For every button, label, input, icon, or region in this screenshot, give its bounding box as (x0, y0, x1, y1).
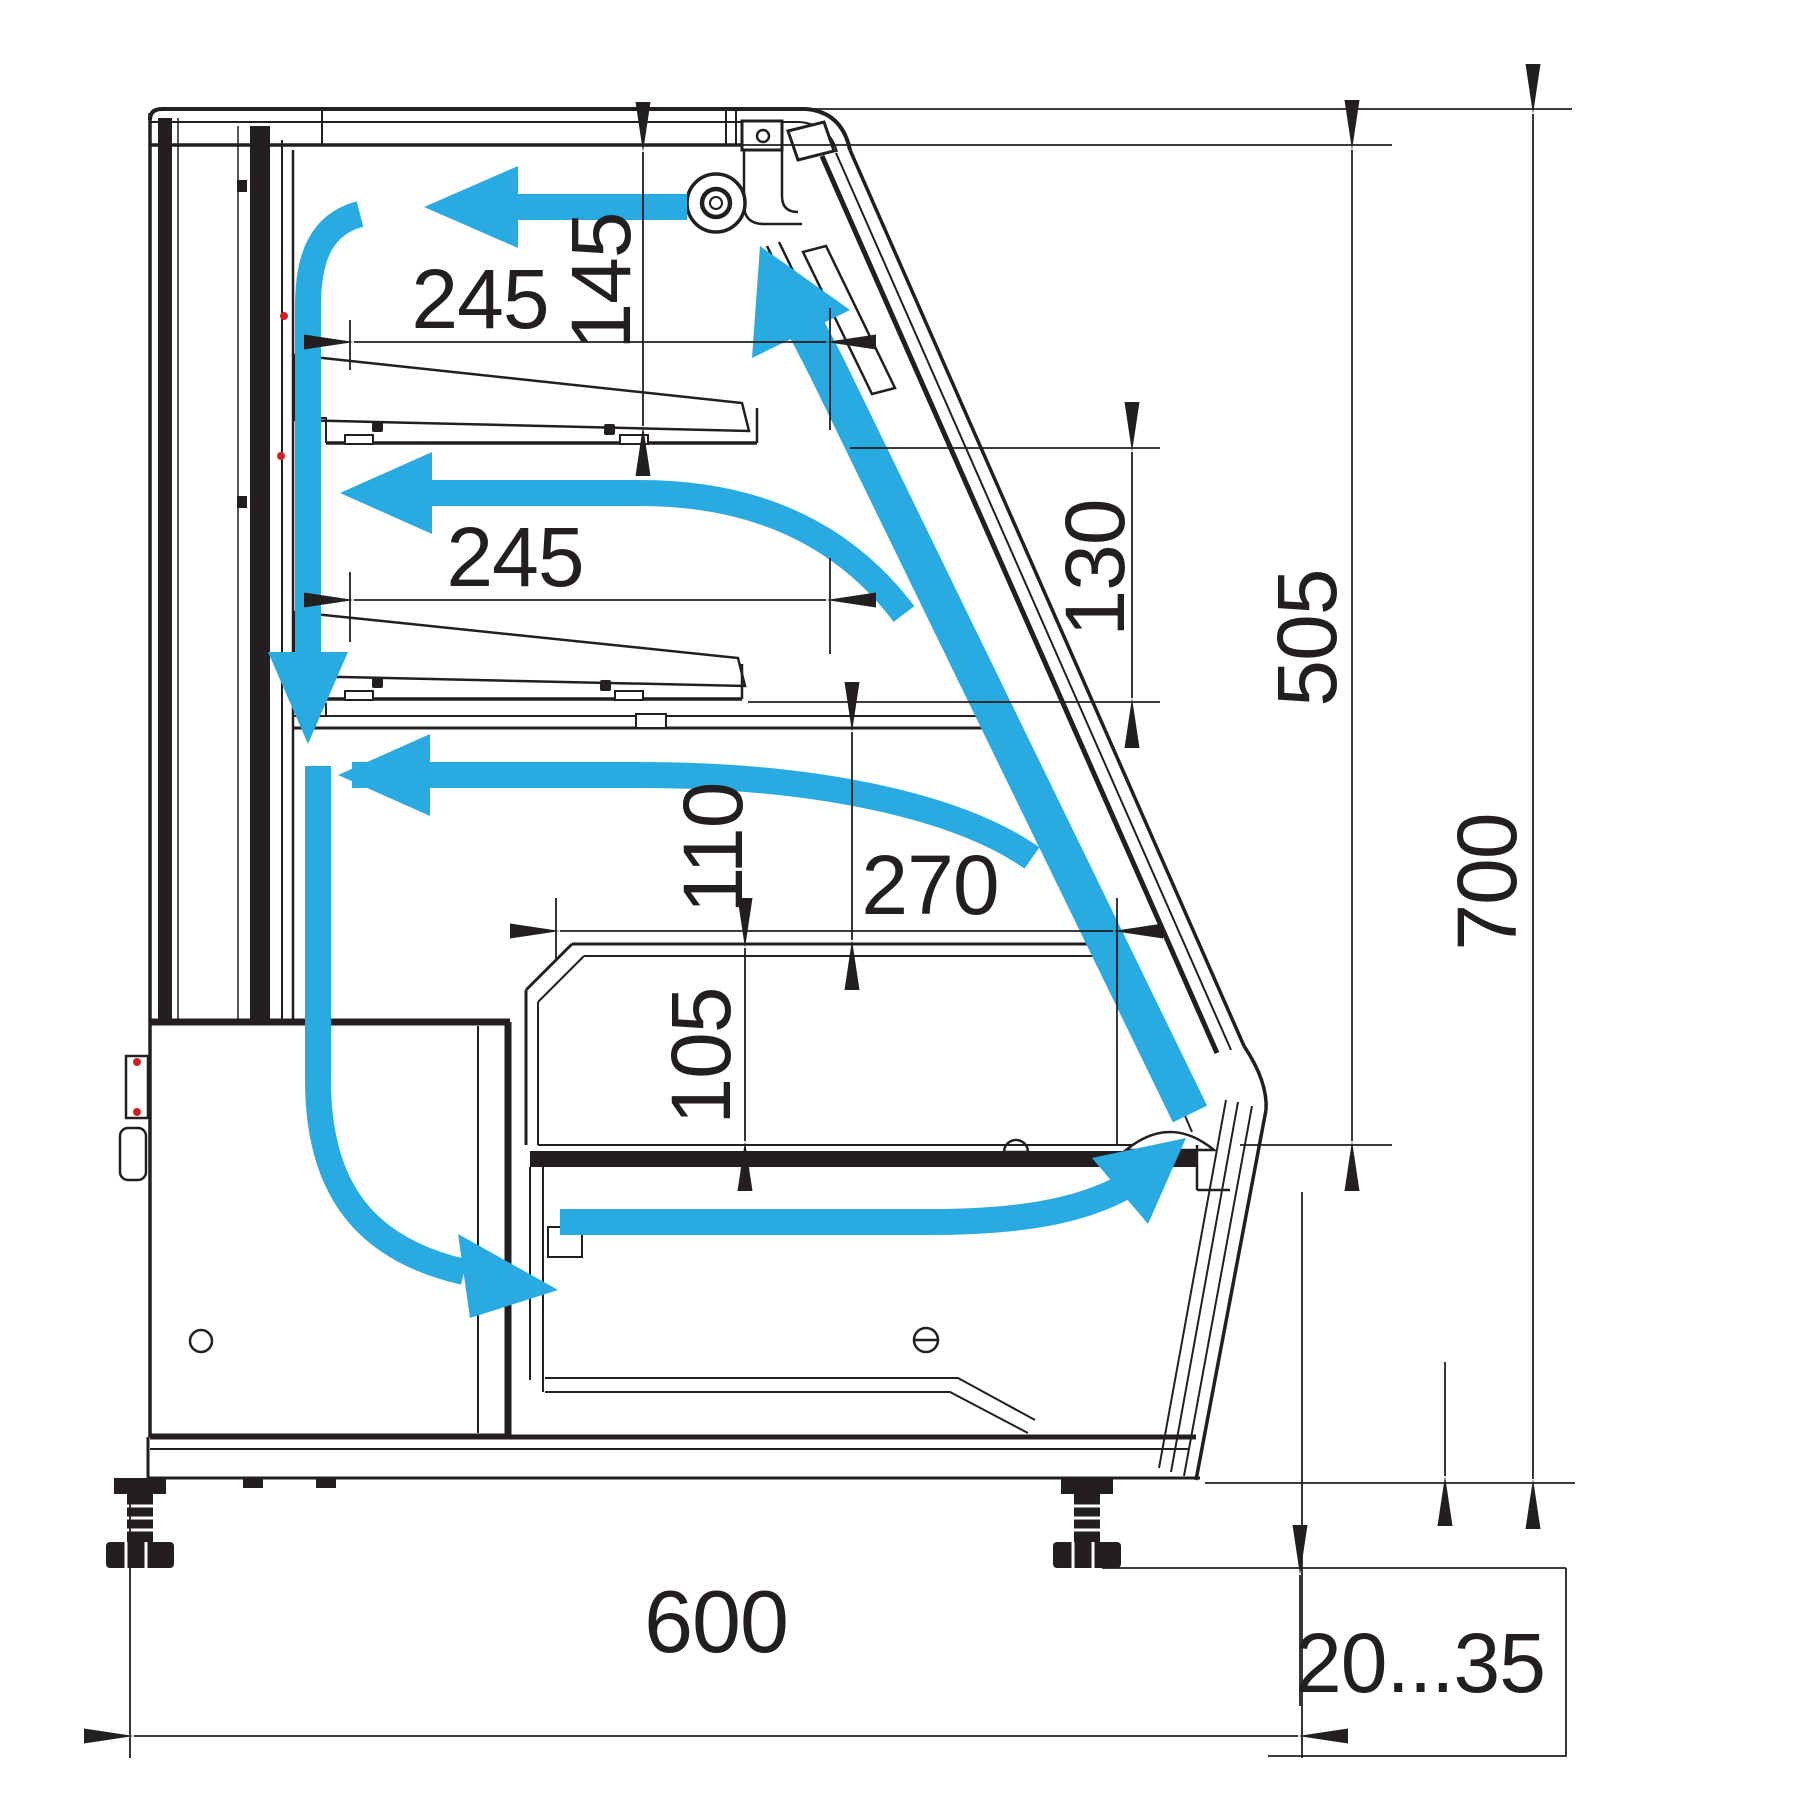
back-wall-extrusion-bar (250, 126, 270, 1022)
red-marker-dot (280, 312, 288, 320)
well-chamfer (526, 944, 572, 990)
airflow-bar (560, 1180, 1136, 1222)
fan-icon (687, 174, 745, 232)
back-wall (150, 113, 293, 1437)
dim-270-label: 270 (861, 838, 998, 932)
foot-base-nut (106, 1542, 174, 1568)
airflow-glass-upflow (752, 246, 1190, 1114)
cord-latch (120, 1128, 146, 1180)
duct-liner (293, 704, 1015, 728)
shelf-middle (293, 612, 745, 700)
dim-700-label: 700 (1440, 813, 1534, 950)
airflow-bottom-duct (560, 1138, 1186, 1224)
plinth-tab (243, 1478, 263, 1488)
shelf-plate (295, 612, 745, 686)
foot-base-nut (1053, 1542, 1121, 1568)
fan (687, 150, 802, 232)
bumper-line-outer (1196, 1110, 1266, 1480)
dim-505: 505 (1260, 150, 1354, 1141)
dim-600: 600 (134, 1572, 1298, 1736)
dim-130-label: 130 (1048, 499, 1142, 636)
dim-245-middle-label: 245 (446, 510, 583, 604)
shelf-screw-icon (372, 421, 383, 432)
shelf-clip (620, 435, 648, 444)
dim-600-label: 600 (644, 1572, 788, 1671)
red-marker-dot (133, 1108, 141, 1116)
shelf-clip (345, 691, 373, 700)
fan-bracket (744, 150, 802, 224)
front-bumper (914, 1046, 1266, 1480)
back-wall-extrusion-bar (158, 118, 172, 1022)
liner-clip (636, 714, 666, 728)
dim-145-label: 145 (554, 212, 648, 349)
shelf-screw-icon (604, 424, 615, 435)
dim-105-label: 105 (654, 987, 748, 1124)
dim-505-label: 505 (1260, 569, 1354, 706)
airflow-arrowhead-left (424, 166, 518, 248)
airflow-arrowhead-left (340, 452, 432, 534)
red-marker-dot (277, 452, 285, 460)
well-chamfer-inner (538, 956, 584, 1002)
leveling-foot-left (106, 1478, 174, 1568)
shelf-clip (615, 691, 643, 700)
fan-bracket-inner (782, 150, 798, 212)
airflow-curve (308, 214, 360, 652)
shelf-top (293, 355, 757, 444)
red-marker-dot (133, 1058, 141, 1066)
leveling-foot-right (1053, 1478, 1121, 1568)
shelf-clip (345, 435, 373, 444)
airflow-arrowhead-left (338, 734, 430, 816)
front-nose-arc (1244, 1046, 1266, 1110)
plinth-tab (316, 1478, 336, 1488)
dim-floor-clearance: 20...35 (1268, 1362, 1566, 1756)
airflow-compartment-curve (318, 766, 558, 1318)
glass-front (767, 150, 1244, 1132)
foot-plate (114, 1478, 166, 1494)
duct-floor-line-lower (545, 1392, 1028, 1433)
cross-section-drawing: 145 245 245 130 110 270 10 (0, 0, 1800, 1813)
dim-110-label: 110 (666, 783, 760, 914)
dim-105: 105 (654, 948, 748, 1141)
shelf-screw-icon (372, 677, 383, 688)
back-wall-tab (237, 180, 247, 192)
airflow-shelf-middle-branch (340, 452, 904, 614)
compartment-screw-icon (190, 1330, 212, 1352)
base-plinth (148, 1437, 1200, 1488)
shelf-screw-icon (600, 680, 611, 691)
shelf-plate (295, 355, 749, 431)
airflow-arrowhead-up-right (1092, 1138, 1186, 1224)
foot-plate (1061, 1478, 1113, 1494)
glass-hinge-block (788, 122, 834, 160)
canopy-top-line (150, 109, 806, 120)
back-wall-tab (237, 496, 247, 508)
dim-700: 700 (1440, 114, 1534, 1479)
dim-245-top-label: 245 (411, 252, 548, 346)
airflow-band (792, 302, 1190, 1114)
diagram-canvas: 145 245 245 130 110 270 10 (0, 0, 1800, 1813)
dim-20-35-label: 20...35 (1295, 1616, 1545, 1710)
dim-130: 130 (1048, 452, 1142, 698)
